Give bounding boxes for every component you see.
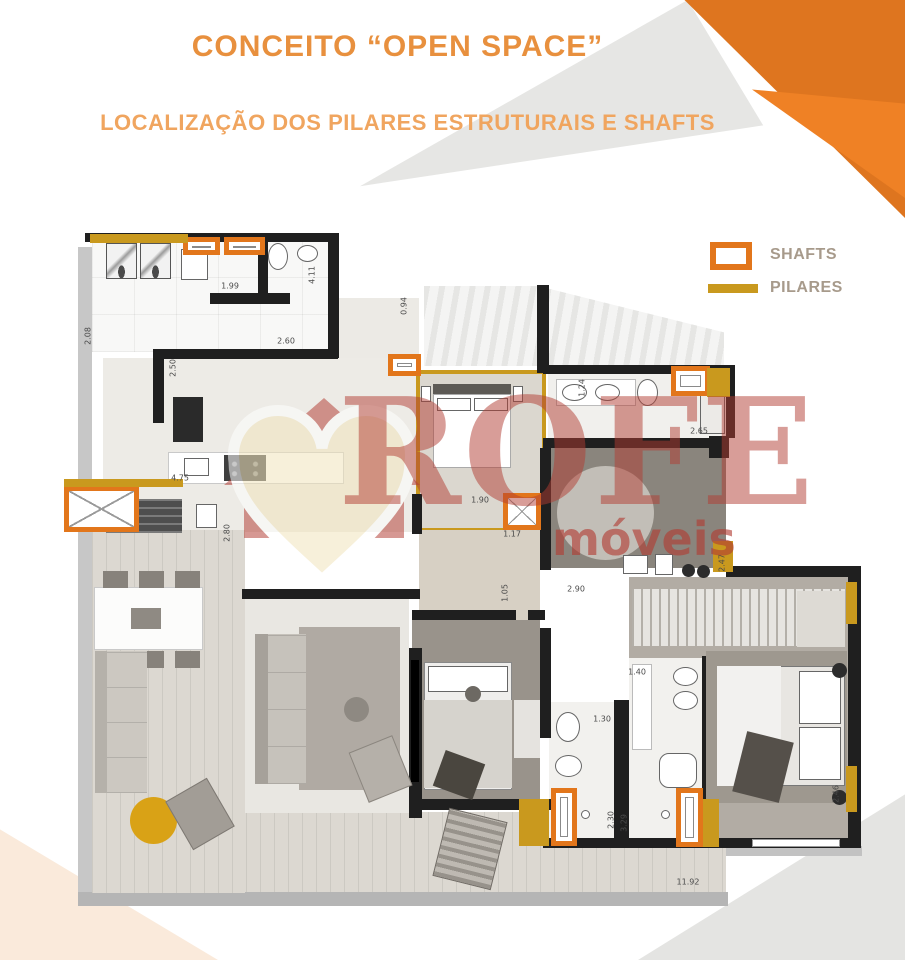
dimension-label: 2.47 [718,554,727,572]
shaft-marker [64,486,139,532]
dimension-label: 2.50 [169,359,178,377]
shaft-vent [192,246,211,248]
legend-shafts-label: SHAFTS [770,246,837,264]
legend: SHAFTS PILARES [700,238,875,308]
dimension-label: 2.30 [607,811,616,829]
pilar-marker [846,766,857,812]
shaft-swatch-icon [710,242,752,270]
shaft-vent [397,363,412,367]
dimension-label: 1.24 [578,379,587,397]
shaft-vent [680,375,701,387]
dimension-label: 11.92 [677,878,700,887]
dimension-label: 3.29 [620,814,629,832]
pilar-swatch-icon [708,284,758,293]
dimension-label: 4.75 [171,474,189,483]
dimension-label: 1.30 [593,715,611,724]
shaft-marker [388,354,421,376]
dimension-label: 1.90 [471,496,489,505]
dimension-label: 2.90 [567,585,585,594]
shaft-marker [671,366,710,396]
dimension-label: 1.40 [628,668,646,677]
pilar-marker [846,582,857,624]
shaft-marker [224,237,265,255]
pilar-marker [519,799,549,846]
pilar-marker [64,479,183,487]
dimension-label: 0.94 [400,297,409,315]
shaft-marker [503,493,541,530]
floor-plan-page: CONCEITO “OPEN SPACE” LOCALIZAÇÃO DOS PI… [0,0,905,960]
dimension-label: 2.65 [690,427,708,436]
legend-pilares-label: PILARES [770,279,843,297]
shaft-marker [676,788,703,847]
dimension-label: 1.17 [503,530,521,539]
dimension-label: 1.05 [501,584,510,602]
dimension-label: 1.99 [221,282,239,291]
dimension-label: 2.80 [223,524,232,542]
pilar-marker [90,234,188,243]
dimension-label: 4.11 [308,266,317,284]
dimension-label: 2.60 [277,337,295,346]
page-subtitle: LOCALIZAÇÃO DOS PILARES ESTRUTURAIS E SH… [0,110,815,136]
plan-annotations: 1.994.112.082.602.500.944.752.801.901.17… [0,0,905,960]
dimension-label: 2.46 [832,785,841,803]
shaft-vent [560,797,568,837]
pilar-marker [703,799,719,847]
shaft-vent [685,797,694,838]
shaft-marker [551,788,577,846]
shaft-vent [233,246,256,248]
page-title: CONCEITO “OPEN SPACE” [0,30,795,64]
shaft-marker [183,237,220,255]
dimension-label: 2.08 [84,327,93,345]
pilar-marker [707,368,730,397]
